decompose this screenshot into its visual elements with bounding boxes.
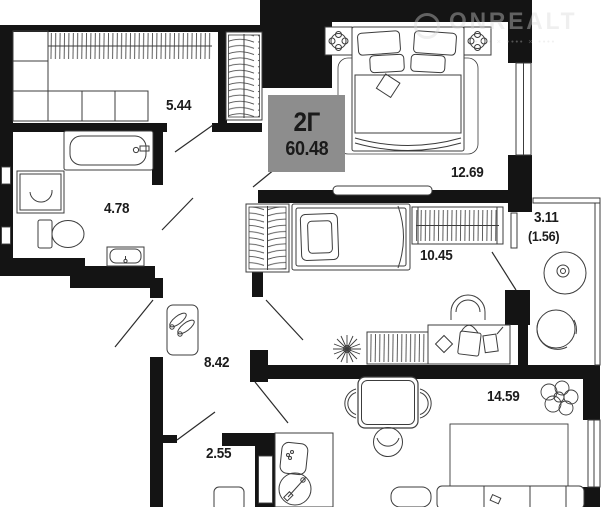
area-label-kitchen-living: 14.59	[487, 389, 519, 406]
toilet	[38, 220, 84, 248]
unit-total-area: 60.48	[285, 139, 328, 159]
area-label-hallway: 8.42	[204, 355, 229, 372]
nightstand-left	[325, 27, 352, 55]
kitchen-counter	[275, 433, 333, 507]
unit-info-badge: 2Г 60.48	[268, 95, 345, 172]
dining-table	[358, 377, 418, 428]
area-label-balcony-reduced: (1.56)	[528, 229, 559, 244]
plant-bush	[541, 381, 578, 415]
unit-type: 2Г	[293, 109, 319, 136]
hall-wardrobe	[246, 204, 289, 272]
wardrobe-2	[412, 207, 503, 244]
area-label-bedroom: 12.69	[451, 165, 483, 182]
storage-appliance	[214, 487, 244, 507]
bookshelf	[367, 332, 428, 364]
washing-machine	[17, 171, 64, 213]
shoe-cabinet	[167, 305, 198, 355]
desk	[428, 325, 510, 364]
clothes-rail	[48, 33, 212, 59]
area-label-balcony: 3.11	[534, 210, 558, 227]
bathtub	[64, 131, 153, 170]
niche-wardrobe	[226, 32, 262, 120]
area-label-bathroom: 4.78	[104, 201, 129, 218]
floor-plan: 5.44 4.78 12.69 10.45 8.42 2.55 14.59 3.…	[0, 0, 606, 507]
bathroom-sink	[107, 247, 144, 266]
area-label-wardrobe: 5.44	[166, 98, 191, 115]
tv-console	[333, 186, 432, 195]
rug	[450, 424, 568, 488]
floor-plan-drawing	[0, 0, 606, 507]
balcony-chair	[537, 310, 576, 349]
desk-chair	[451, 295, 485, 320]
area-label-bedroom2: 10.45	[420, 248, 452, 265]
wall-shafts	[2, 167, 273, 503]
balcony-table	[544, 252, 586, 294]
plant-spiky	[333, 335, 361, 363]
nightstand-right	[464, 27, 491, 55]
sofa	[437, 486, 584, 507]
double-bed	[352, 27, 464, 151]
area-label-storage: 2.55	[206, 446, 231, 463]
single-bed	[292, 204, 410, 270]
